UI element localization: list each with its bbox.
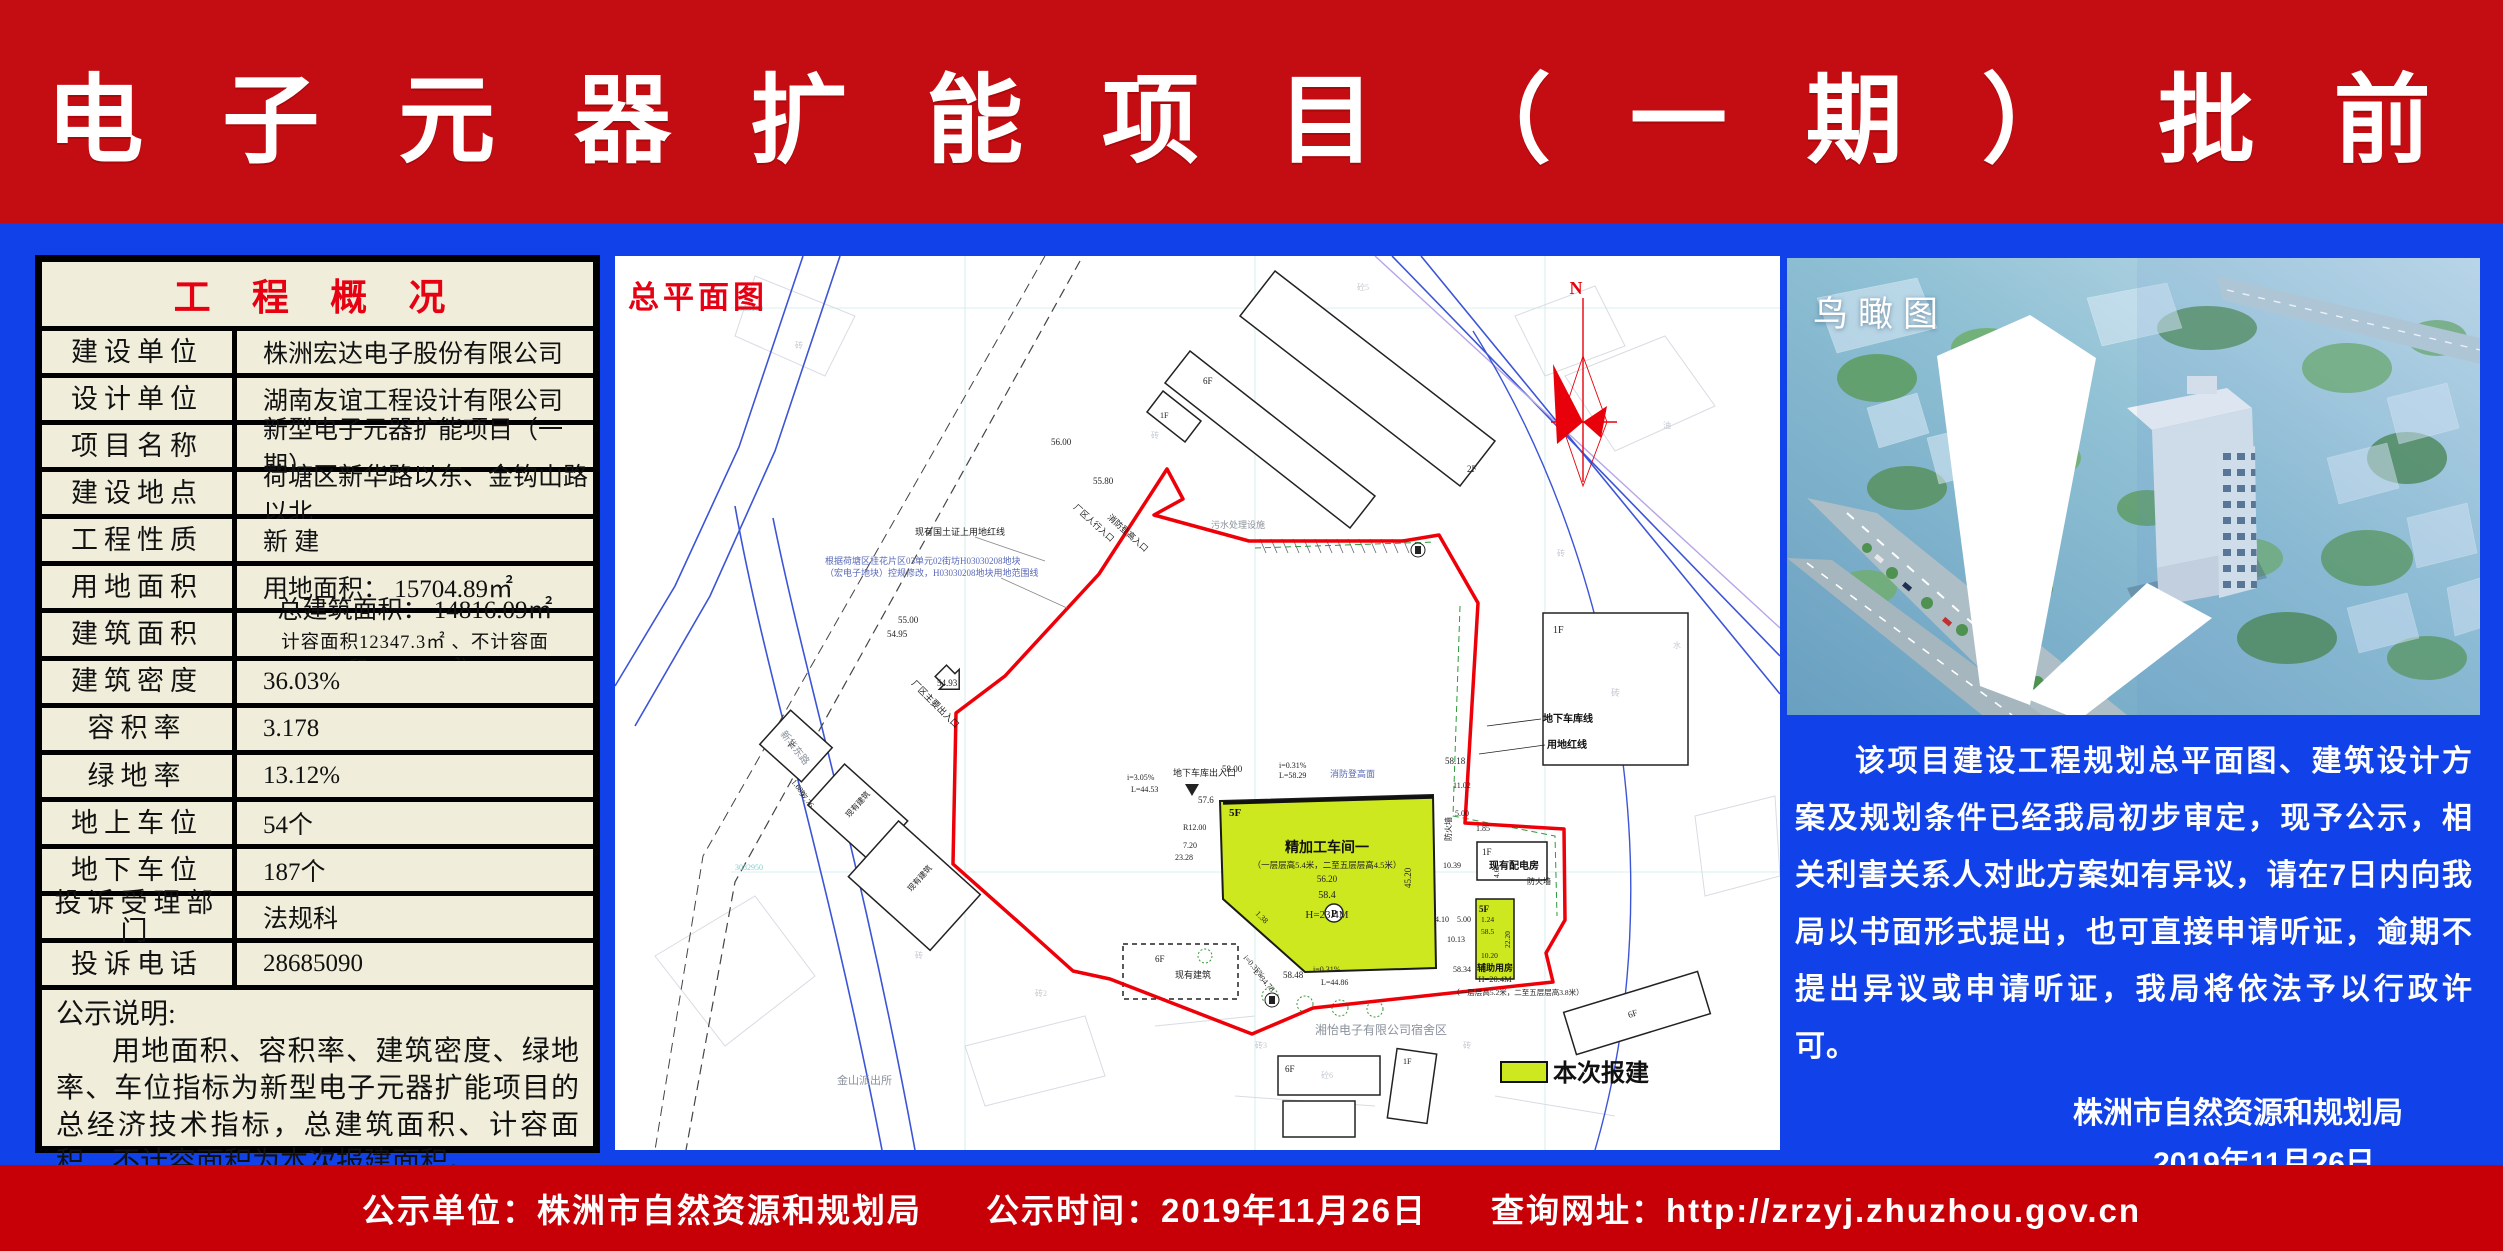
row-value: 13.12%: [237, 755, 593, 797]
table-row: 建设单位株洲宏达电子股份有限公司: [42, 331, 593, 373]
table-row: 绿地率13.12%: [42, 755, 593, 797]
table-row: 投诉受理部门法规科: [42, 896, 593, 938]
plan-annotation: L=44.53: [1131, 785, 1158, 794]
table-row: 容积率3.178: [42, 708, 593, 750]
plan-annotation: 消防登高面: [1330, 768, 1375, 779]
project-overview-table: 工 程 概 况 建设单位株洲宏达电子股份有限公司设计单位湖南友谊工程设计有限公司…: [35, 255, 600, 1153]
plan-annotation: H=20.4M: [1478, 974, 1512, 984]
row-label: 项目名称: [42, 425, 232, 467]
row-label: 建筑密度: [42, 661, 232, 703]
page-title: 新 型 电 子 元 器 扩 能 项 目 （ 一 期 ） 批 前 公 示: [0, 41, 2503, 182]
north-arrow: [1551, 298, 1617, 486]
row-label: 容积率: [42, 708, 232, 750]
plan-annotation: 4.10: [1435, 915, 1449, 924]
plan-annotation: 58.5: [1481, 927, 1494, 936]
plan-annotation: 55.80: [1093, 476, 1114, 486]
plan-annotation: 防火墙: [1443, 817, 1453, 841]
row-label: 工程性质: [42, 519, 232, 561]
plan-annotation: 砖3: [1255, 1040, 1267, 1050]
plan-annotation: 56.20: [1317, 874, 1338, 884]
plan-annotation: 10.13: [1447, 935, 1465, 944]
table-row: 投诉电话28685090: [42, 943, 593, 985]
plan-annotation: 砖: [1151, 430, 1159, 440]
notice-note: 公示说明: 用地面积、容积率、建筑密度、绿地率、车位指标为新型电子元器扩能项目的…: [42, 990, 593, 1146]
plan-annotation: 现有建筑: [1175, 969, 1211, 980]
plan-annotation: 5F: [1229, 807, 1242, 819]
land-boundary-redline: [953, 469, 1565, 1034]
plan-annotation: 58.34: [1453, 965, 1471, 974]
footer-date: 公示时间：2019年11月26日: [986, 1184, 1427, 1232]
row-label: 建设单位: [42, 331, 232, 373]
plan-annotation: L=44.86: [1321, 978, 1348, 987]
table-row: 地下车位187个: [42, 849, 593, 891]
plan-annotation: 58.48: [1283, 970, 1304, 980]
legend-swatch: [1501, 1062, 1547, 1082]
plan-annotation: 11.02: [1453, 781, 1471, 790]
row-label: 设计单位: [42, 378, 232, 420]
plan-annotation: 57.6: [1198, 795, 1214, 805]
plan-annotation: P: [1331, 909, 1337, 920]
plan-annotation: 45.20: [1403, 867, 1413, 888]
plan-annotation: 砖: [1611, 687, 1620, 698]
plan-annotation: （宏电子地块）控规修改，H03030208地块用地范围线: [825, 567, 1039, 578]
plan-annotation: N: [1570, 278, 1583, 298]
plan-annotation: 辅助用房: [1477, 962, 1513, 973]
plan-annotation: 砖: [915, 950, 923, 960]
plan-annotation: （一层层高5.4米，二至五层层高4.5米）: [1253, 860, 1402, 870]
plan-annotation: 6F: [1285, 1064, 1295, 1074]
note-body: 用地面积、容积率、建筑密度、绿地率、车位指标为新型电子元器扩能项目的总经济技术指…: [56, 1033, 579, 1181]
plan-annotation: 水: [1673, 640, 1681, 650]
table-title: 工 程 概 况: [42, 262, 593, 326]
plan-annotation: i=0.31%: [1313, 965, 1341, 974]
plan-annotation: 6F: [1155, 954, 1165, 964]
plan-annotation: 58.00: [1222, 764, 1243, 774]
row-value: 法规科: [237, 896, 593, 938]
aerial-panel-label: 鸟瞰图: [1813, 286, 1948, 337]
footer-url[interactable]: 查询网址：http://zrzyj.zhuzhou.gov.cn: [1491, 1184, 2141, 1232]
plan-annotation: 54.93: [937, 678, 958, 688]
plan-annotation: 7.20: [1183, 841, 1197, 850]
footer-banner: 公示单位：株洲市自然资源和规划局 公示时间：2019年11月26日 查询网址：h…: [0, 1165, 2503, 1251]
row-value: 株洲宏达电子股份有限公司: [237, 331, 593, 373]
plan-annotation: 10.20: [1481, 951, 1498, 960]
plan-annotation: L=58.29: [1279, 771, 1306, 780]
row-value: 54个: [237, 802, 593, 844]
row-label: 投诉电话: [42, 943, 232, 985]
plan-annotation: 58.4: [1318, 890, 1336, 901]
plan-annotation: 油: [1663, 420, 1671, 430]
plan-annotation: 根据荷塘区桂花片区03单元02街坊H03030208地块: [825, 555, 1021, 566]
plan-annotation: 5F: [1479, 904, 1490, 914]
row-value: 3.178: [237, 708, 593, 750]
plan-annotation: 5.00: [1457, 915, 1471, 924]
plan-annotation: 22.20: [1503, 931, 1512, 948]
plan-annotation: 10.39: [1443, 861, 1461, 870]
row-value: 36.03%: [237, 661, 593, 703]
plan-annotation: 砖: [1557, 548, 1565, 558]
plan-annotation: 1.85: [1476, 824, 1490, 833]
plan-annotation: 23.28: [1175, 853, 1193, 862]
table-row: 建设地点荷塘区新华路以东、金钩山路以北: [42, 472, 593, 514]
plan-annotation: 2F: [1467, 464, 1477, 474]
plan-annotation: 5.00: [1455, 809, 1469, 818]
plan-annotation: 1F: [1403, 1057, 1412, 1066]
plan-annotation: 砖2: [1035, 988, 1047, 998]
plan-annotation: H=23.4M: [1305, 909, 1348, 921]
plan-annotation: 现有国土证上用地红线: [915, 526, 1005, 537]
row-label: 绿地率: [42, 755, 232, 797]
plan-annotation: 金山派出所: [837, 1073, 892, 1087]
table-row: 地上车位54个: [42, 802, 593, 844]
plan-annotation: 54.95: [887, 629, 908, 639]
plan-annotation: 55.00: [898, 615, 919, 625]
notice-board: 新 型 电 子 元 器 扩 能 项 目 （ 一 期 ） 批 前 公 示 工 程 …: [0, 0, 2503, 1251]
row-label: 用地面积: [42, 566, 232, 608]
plan-annotation: 1F: [1553, 625, 1564, 636]
table-row: 工程性质新 建: [42, 519, 593, 561]
plan-annotation: 防火墙: [1527, 876, 1551, 886]
notice-text-block: 该项目建设工程规划总平面图、建筑设计方案及规划条件已经我局初步审定，现予公示，相…: [1795, 733, 2473, 1189]
site-plan-drawing: N精加工车间一（一层层高5.4米，二至五层层高4.5米）56.2058.4H=2…: [615, 256, 1780, 1150]
table-row: 建筑密度36.03%: [42, 661, 593, 703]
row-label: 地下车位: [42, 849, 232, 891]
plan-annotation: 砖: [1463, 1040, 1471, 1050]
plan-annotation: 精加工车间一: [1285, 839, 1369, 856]
row-value: 187个: [237, 849, 593, 891]
notice-paragraph: 该项目建设工程规划总平面图、建筑设计方案及规划条件已经我局初步审定，现予公示，相…: [1795, 733, 2473, 1075]
row-label: 投诉受理部门: [42, 896, 232, 938]
row-value: 28685090: [237, 943, 593, 985]
row-value: 新 建: [237, 519, 593, 561]
plan-annotation: 1F: [1160, 411, 1169, 420]
plan-annotation: 6F: [1203, 376, 1213, 386]
plan-annotation: i=0.31%: [1279, 761, 1307, 770]
table-row: 建筑面积总建筑面积： 14816.09㎡计容面积12347.3㎡ 、不计容面积:…: [42, 613, 593, 655]
plan-annotation: 砼5: [1357, 282, 1369, 292]
footer-publisher: 公示单位：株洲市自然资源和规划局: [362, 1184, 922, 1232]
plan-annotation: i=3.05%: [1127, 773, 1155, 782]
plan-annotation: 4.66: [1492, 865, 1501, 878]
plan-annotation: 砖: [795, 340, 803, 350]
row-label: 建筑面积: [42, 613, 232, 655]
plan-annotation: R12.00: [1183, 823, 1206, 832]
plan-annotation: 地下车库线: [1543, 712, 1593, 725]
note-title: 公示说明:: [56, 996, 579, 1033]
plan-annotation: 用地红线: [1546, 738, 1587, 751]
row-value: 总建筑面积： 14816.09㎡计容面积12347.3㎡ 、不计容面积:2468…: [237, 613, 593, 655]
row-label: 建设地点: [42, 472, 232, 514]
plan-annotation: 污水处理设施: [1211, 519, 1265, 530]
plan-annotation: 56.00: [1051, 437, 1072, 447]
title-banner: 新 型 电 子 元 器 扩 能 项 目 （ 一 期 ） 批 前 公 示: [0, 0, 2503, 223]
plan-annotation: 58.18: [1445, 756, 1466, 766]
aerial-view-panel: 鸟瞰图: [1787, 258, 2480, 715]
plan-panel-label: 总平面图: [628, 272, 768, 317]
plan-annotation: 3082950: [735, 863, 763, 872]
row-value: 荷塘区新华路以东、金钩山路以北: [237, 472, 593, 514]
plan-annotation: 砼6: [1321, 1070, 1333, 1080]
plan-annotation: （一层层高5.2米，二至五层层高3.8米）: [1452, 987, 1583, 997]
plan-annotation: 湘怡电子有限公司宿舍区: [1315, 1022, 1447, 1037]
row-label: 地上车位: [42, 802, 232, 844]
plan-annotation: 1F: [1482, 847, 1492, 857]
plan-annotation: 本次报建: [1553, 1060, 1649, 1087]
plan-annotation: 1.24: [1481, 915, 1494, 924]
signature-org: 株洲市自然资源和规划局: [1795, 1089, 2403, 1139]
site-plan-panel: N精加工车间一（一层层高5.4米，二至五层层高4.5米）56.2058.4H=2…: [615, 256, 1780, 1150]
